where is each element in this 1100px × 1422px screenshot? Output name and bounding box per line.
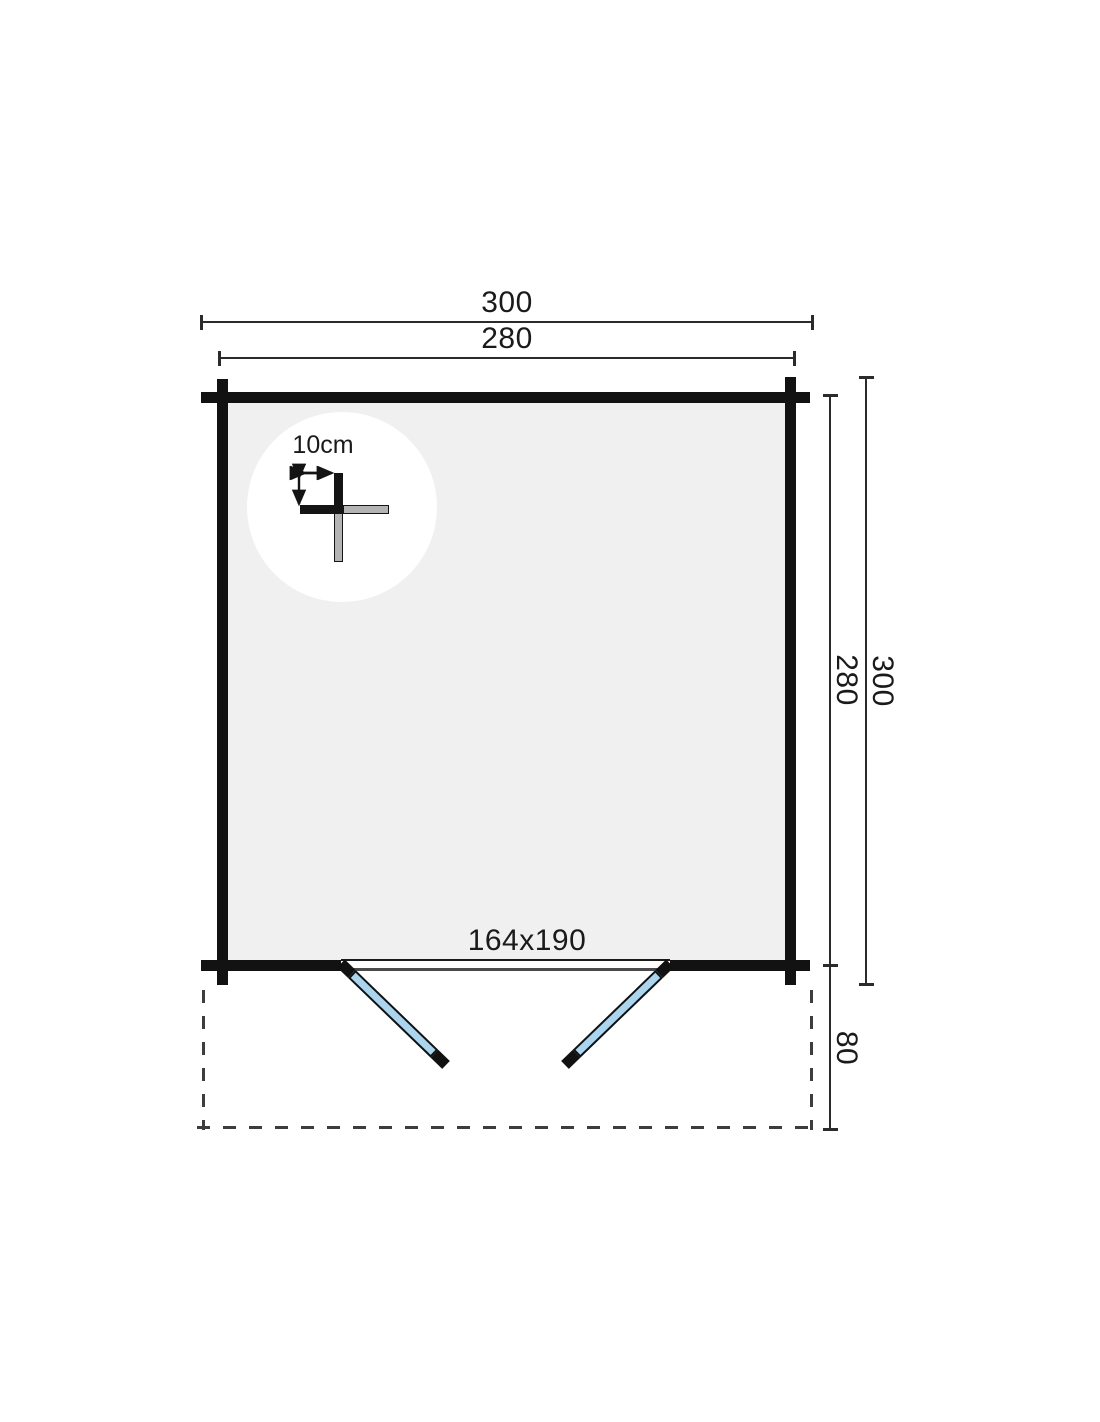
wall-detail-gray-horizontal (343, 505, 389, 514)
dim-tick (200, 315, 203, 330)
dim-tick (859, 376, 874, 379)
wall-right (785, 377, 796, 985)
dim-tick (811, 315, 814, 330)
height-outer-label: 300 (867, 641, 897, 721)
dim-tick (823, 1128, 838, 1131)
door-glass-left (348, 970, 438, 1058)
canopy-depth-label: 80 (831, 1008, 861, 1088)
height-inner-label: 280 (831, 640, 861, 720)
dim-tick (218, 351, 221, 366)
door-leaf-left (337, 960, 450, 1069)
dim-tick (859, 983, 874, 986)
canopy-outline-right (810, 990, 813, 1130)
wall-left (217, 379, 228, 985)
door-size-label: 164x190 (447, 926, 607, 956)
width-outer-label: 300 (447, 288, 567, 318)
wall-bottom-left-segment (201, 960, 342, 971)
door-threshold (341, 959, 670, 971)
wall-thickness-arrows-icon (288, 462, 348, 517)
wall-thickness-label: 10cm (273, 431, 373, 459)
width-inner-label: 280 (447, 324, 567, 354)
dim-line-width-inner (220, 357, 795, 359)
wall-bottom-right-segment (670, 960, 810, 971)
dim-tick (793, 351, 796, 366)
floor-plan-canvas: 164x190 300 280 280 300 80 10cm (0, 0, 1100, 1422)
canopy-outline-left (202, 990, 205, 1130)
wall-top (201, 392, 810, 403)
wall-detail-gray-vertical (334, 513, 343, 562)
door-glass-right (573, 970, 663, 1058)
canopy-outline-bottom (197, 1126, 814, 1129)
dim-tick (823, 394, 838, 397)
door-leaf-right (561, 960, 674, 1069)
